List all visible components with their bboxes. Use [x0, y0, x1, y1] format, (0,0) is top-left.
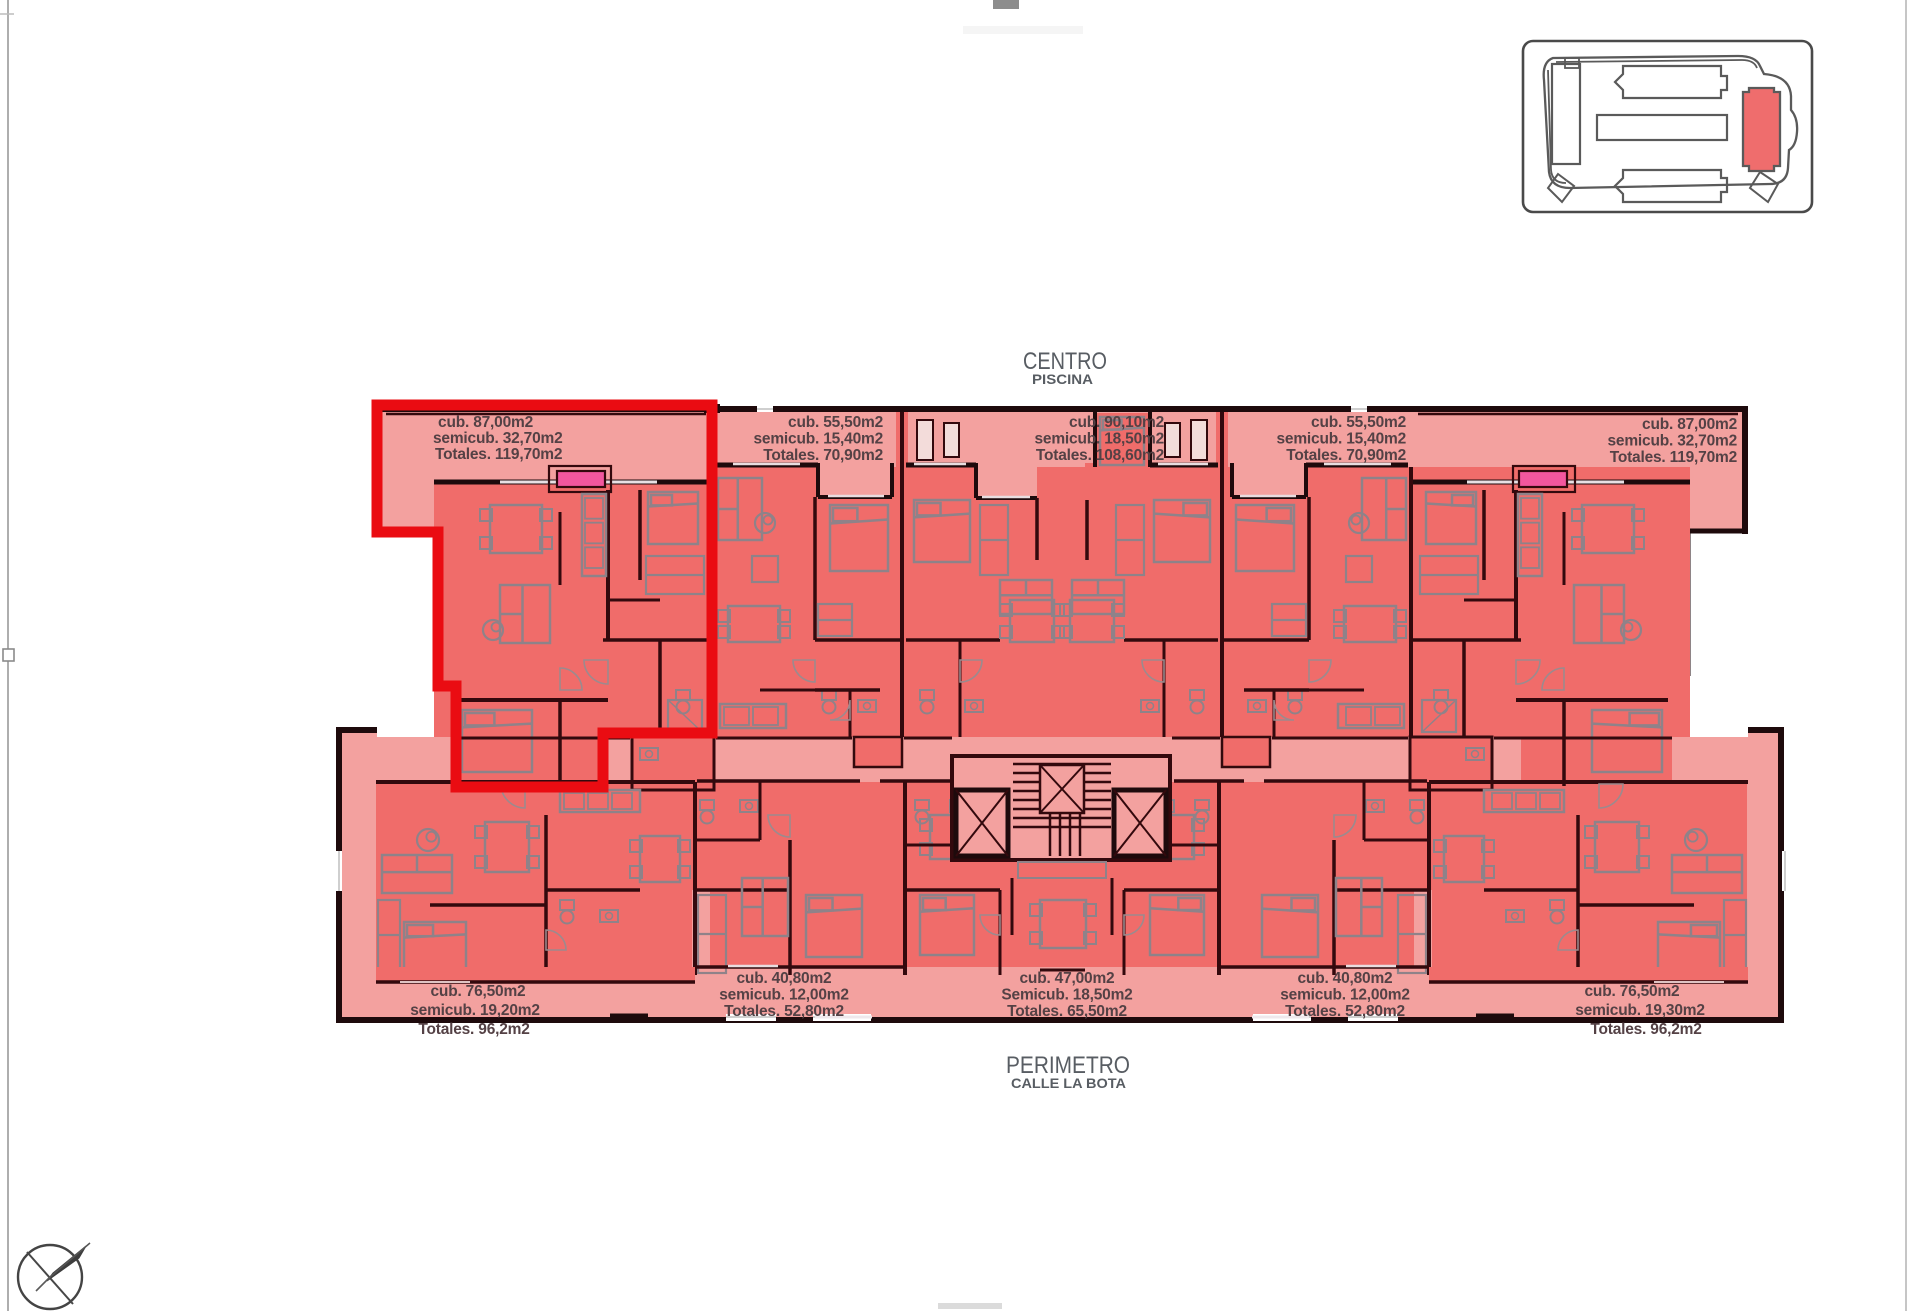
- svg-text:CALLE LA BOTA: CALLE LA BOTA: [1011, 1076, 1126, 1091]
- svg-text:cub. 47,00m2: cub. 47,00m2: [1020, 970, 1115, 987]
- svg-text:semicub. 15,40m2: semicub. 15,40m2: [1277, 431, 1407, 448]
- svg-text:semicub. 19,20m2: semicub. 19,20m2: [410, 1002, 540, 1019]
- svg-text:Totales. 96,2m2: Totales. 96,2m2: [418, 1021, 529, 1038]
- svg-text:cub. 87,00m2: cub. 87,00m2: [1642, 416, 1737, 433]
- svg-text:semicub. 32,70m2: semicub. 32,70m2: [433, 430, 563, 447]
- svg-text:Totales. 52,80m2: Totales. 52,80m2: [724, 1003, 844, 1020]
- svg-text:cub. 55,50m2: cub. 55,50m2: [1311, 414, 1406, 431]
- svg-text:cub. 87,00m2: cub. 87,00m2: [438, 414, 533, 431]
- svg-text:cub. 55,50m2: cub. 55,50m2: [788, 414, 883, 431]
- svg-text:cub. 40,80m2: cub. 40,80m2: [1298, 970, 1393, 987]
- svg-text:semicub. 19,30m2: semicub. 19,30m2: [1575, 1002, 1705, 1019]
- svg-text:Totales. 70,90m2: Totales. 70,90m2: [763, 447, 883, 464]
- svg-text:semicub. 32,70m2: semicub. 32,70m2: [1608, 433, 1738, 450]
- svg-text:semicub. 12,00m2: semicub. 12,00m2: [719, 987, 849, 1004]
- svg-text:PERIMETRO: PERIMETRO: [1006, 1052, 1130, 1079]
- svg-text:Totales. 65,50m2: Totales. 65,50m2: [1007, 1003, 1127, 1020]
- svg-text:semicub. 15,40m2: semicub. 15,40m2: [754, 431, 884, 448]
- svg-text:Totales. 70,90m2: Totales. 70,90m2: [1286, 447, 1406, 464]
- svg-text:PISCINA: PISCINA: [1032, 371, 1093, 387]
- svg-text:Totales. 119,70m2: Totales. 119,70m2: [435, 446, 562, 463]
- svg-text:Totales. 108,60m2: Totales. 108,60m2: [1036, 447, 1164, 464]
- svg-text:semicub. 18,50m2: semicub. 18,50m2: [1035, 431, 1165, 448]
- svg-text:Totales. 52,80m2: Totales. 52,80m2: [1285, 1003, 1405, 1020]
- svg-text:cub. 40,80m2: cub. 40,80m2: [737, 970, 832, 987]
- svg-text:cub. 90,10m2: cub. 90,10m2: [1069, 414, 1164, 431]
- svg-text:Semicub. 18,50m2: Semicub. 18,50m2: [1001, 987, 1132, 1004]
- svg-text:semicub. 12,00m2: semicub. 12,00m2: [1280, 987, 1410, 1004]
- svg-text:cub. 76,50m2: cub. 76,50m2: [431, 983, 526, 1000]
- svg-text:cub. 76,50m2: cub. 76,50m2: [1585, 983, 1680, 1000]
- svg-text:Totales. 119,70m2: Totales. 119,70m2: [1610, 449, 1737, 466]
- svg-text:Totales. 96,2m2: Totales. 96,2m2: [1590, 1021, 1701, 1038]
